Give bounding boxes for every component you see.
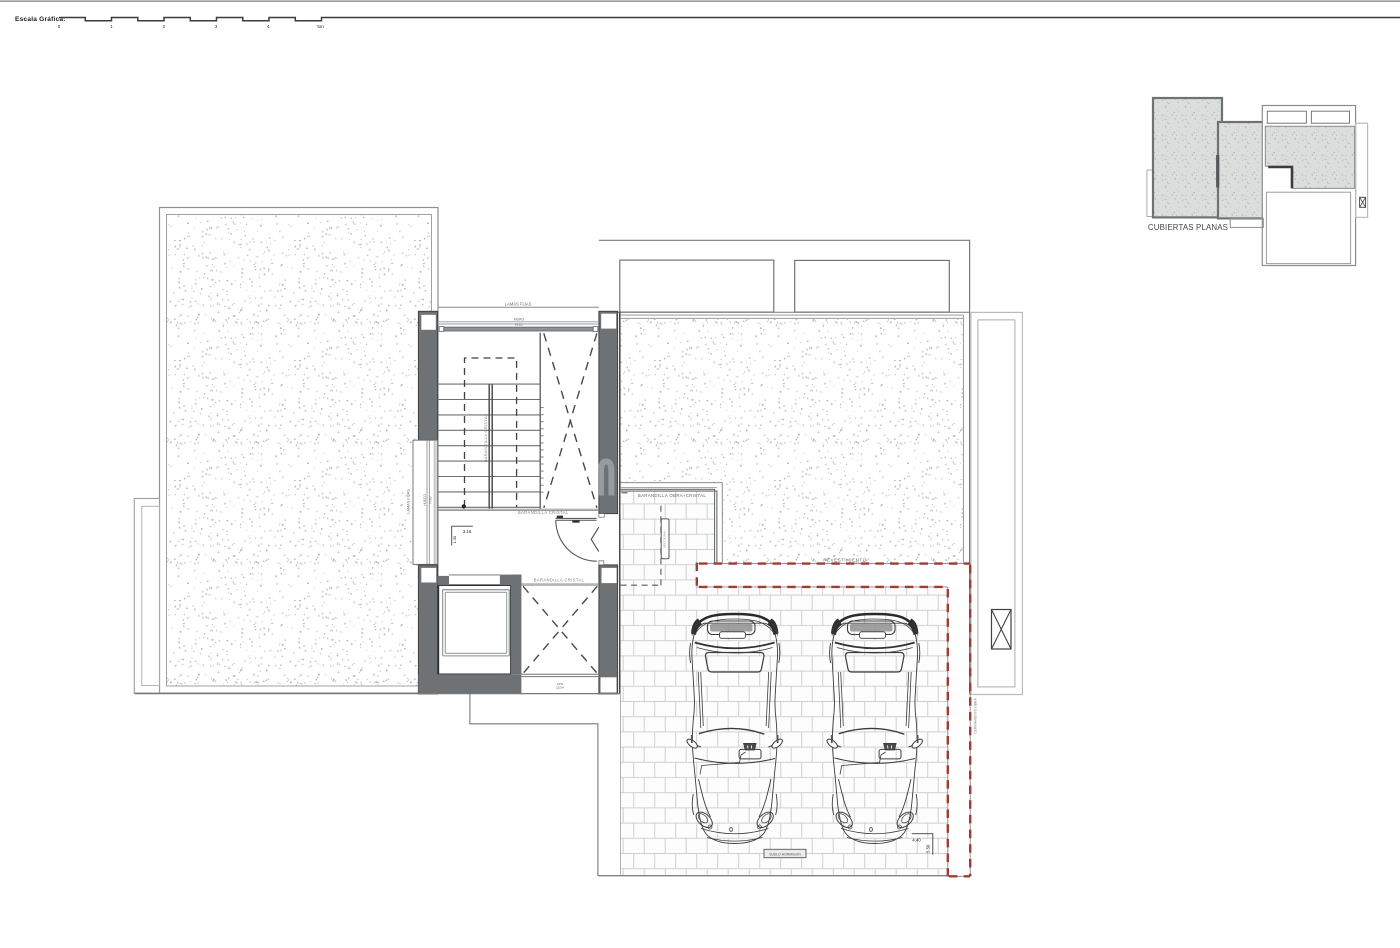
svg-text:CERRAMIENTO OBRA: CERRAMIENTO OBRA: [974, 697, 978, 733]
svg-text:FIJO: FIJO: [515, 323, 523, 327]
svg-text:4.40: 4.40: [912, 838, 921, 843]
svg-text:1.30: 1.30: [452, 535, 457, 544]
svg-text:3: 3: [215, 24, 218, 29]
svg-text:0: 0: [58, 24, 61, 29]
svg-text:1: 1: [110, 24, 113, 29]
svg-text:5.50: 5.50: [925, 844, 930, 853]
svg-text:FIJO: FIJO: [428, 496, 432, 503]
svg-text:HUECO: HUECO: [423, 494, 427, 506]
svg-text:22/14: 22/14: [556, 686, 564, 690]
svg-text:BARANDILLA CRISTAL: BARANDILLA CRISTAL: [483, 413, 488, 462]
svg-text:LAMAS FIJAS: LAMAS FIJAS: [505, 302, 532, 307]
svg-text:SUELO HORMIGON: SUELO HORMIGON: [769, 852, 801, 856]
svg-text:SECCIONAL: SECCIONAL: [662, 530, 666, 548]
svg-text:LAMAS FIJAS: LAMAS FIJAS: [407, 489, 411, 514]
svg-text:MURO: MURO: [514, 318, 525, 322]
svg-text:BARANDILLA CRISTAL: BARANDILLA CRISTAL: [518, 510, 569, 515]
svg-text:BARANDILLA CRISTAL: BARANDILLA CRISTAL: [534, 578, 585, 583]
svg-text:Escala Gráfica:: Escala Gráfica:: [15, 16, 66, 23]
svg-text:BARANDILLA OBRA+CRISTAL: BARANDILLA OBRA+CRISTAL: [638, 493, 707, 498]
svg-text:5m: 5m: [317, 24, 324, 29]
svg-text:3.16: 3.16: [463, 529, 472, 534]
svg-text:2: 2: [162, 24, 165, 29]
svg-text:REVESTIMIENTO: REVESTIMIENTO: [823, 557, 866, 562]
svg-text:4: 4: [267, 24, 270, 29]
svg-text:CUBIERTAS PLANAS: CUBIERTAS PLANAS: [1148, 223, 1228, 232]
